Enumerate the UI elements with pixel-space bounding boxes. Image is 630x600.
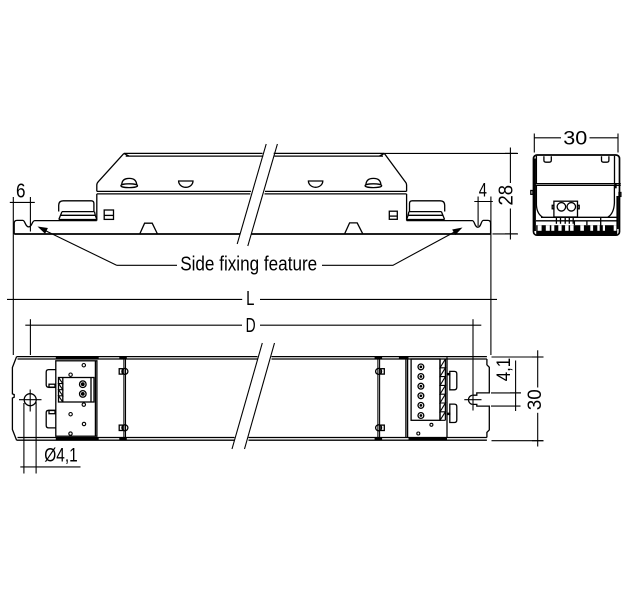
svg-text:28: 28 (495, 185, 518, 206)
svg-text:4,1: 4,1 (494, 358, 515, 382)
svg-text:30: 30 (525, 389, 546, 410)
svg-text:Ø4,1: Ø4,1 (44, 446, 77, 467)
svg-text:Side fixing feature: Side fixing feature (180, 252, 317, 275)
svg-text:D: D (246, 314, 256, 337)
svg-text:30: 30 (563, 128, 587, 149)
svg-text:6: 6 (16, 180, 26, 203)
svg-text:L: L (246, 287, 254, 310)
svg-text:4: 4 (479, 180, 488, 201)
